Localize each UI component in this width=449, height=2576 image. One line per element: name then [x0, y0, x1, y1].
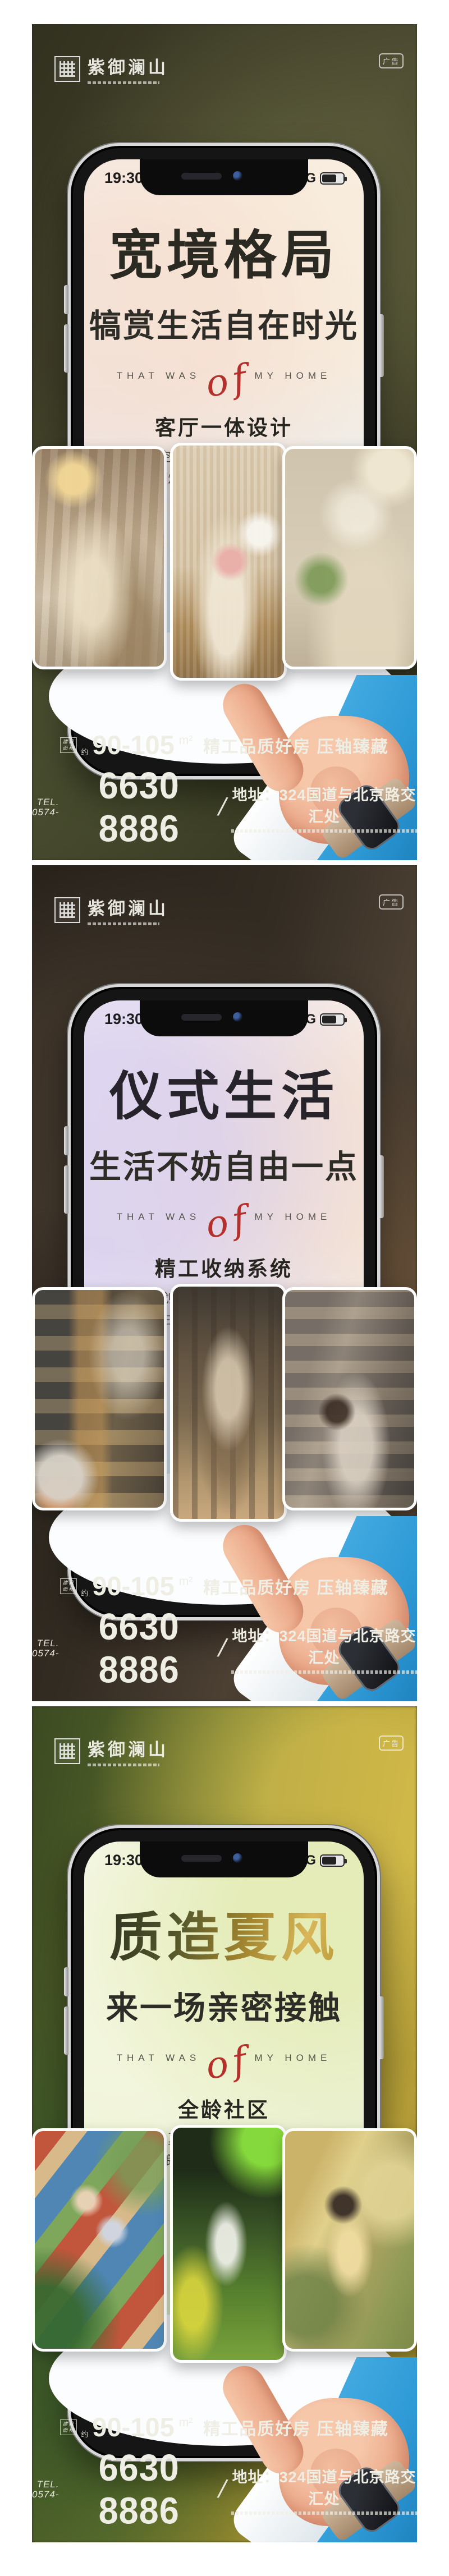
- tel-label: TEL. 0574-: [32, 797, 59, 818]
- area-unit: m²: [179, 1571, 193, 1588]
- brand-logo: 紫御澜山: [54, 894, 168, 925]
- subheadline: 来一场亲密接触: [84, 1982, 364, 2028]
- area-value: 90-105: [92, 1571, 174, 1601]
- area-slogan-line: 建筑 面积 约 90-105 m² 精工品质好房 压轴臻藏: [32, 1571, 417, 1601]
- phone-number: 6630 8886: [65, 1606, 213, 1692]
- power-button: [379, 1155, 384, 1218]
- tel-address-line: TEL. 0574- 6630 8886 / 地址：324国道与北京路交汇处: [32, 767, 417, 848]
- area-unit: m²: [179, 2412, 193, 2430]
- slogan: 精工品质好房 压轴臻藏: [203, 733, 388, 757]
- battery-icon: [320, 172, 345, 185]
- speaker-slot-icon: [181, 1855, 222, 1862]
- ad-badge: 广告: [379, 894, 404, 910]
- volume-up-button: [64, 285, 68, 314]
- approx-label: 约: [81, 746, 88, 760]
- camera-icon: [233, 1012, 242, 1022]
- photo-left: [32, 1287, 167, 1510]
- tagline-left: THAT WAS: [117, 2052, 201, 2064]
- english-tagline: THAT WAS of MY HOME: [84, 361, 364, 391]
- photo-center: [170, 443, 287, 681]
- tagline-script-of: of: [203, 2040, 252, 2077]
- slogan: 精工品质好房 压轴臻藏: [203, 1574, 388, 1599]
- tagline-right: MY HOME: [254, 370, 331, 382]
- tagline-right: MY HOME: [254, 1211, 331, 1223]
- volume-down-button: [64, 324, 68, 373]
- divider-slash: /: [216, 793, 230, 821]
- volume-down-button: [64, 2006, 68, 2055]
- english-tagline: THAT WAS of MY HOME: [84, 2043, 364, 2073]
- camera-icon: [233, 1853, 242, 1863]
- disclaimer-line: [231, 1670, 417, 1674]
- panel-header: 紫御澜山 广告: [54, 53, 404, 84]
- section-title: 客厅一体设计: [84, 411, 364, 441]
- phone-notch: [140, 1000, 308, 1036]
- english-tagline: THAT WAS of MY HOME: [84, 1202, 364, 1232]
- brand-seal-icon: [54, 1738, 80, 1764]
- subheadline: 犒赏生活自在时光: [84, 300, 364, 346]
- status-time: 19:30: [104, 169, 143, 187]
- volume-down-button: [64, 1165, 68, 1214]
- area-label: 建筑 面积: [60, 737, 77, 753]
- address: 地址：324国道与北京路交汇处: [231, 1624, 417, 1668]
- speaker-slot-icon: [181, 173, 222, 180]
- brand-subline: [88, 922, 159, 925]
- tagline-right: MY HOME: [254, 2052, 331, 2064]
- disclaimer-line: [231, 829, 417, 833]
- tel-label: TEL. 0574-: [32, 1638, 59, 1659]
- area-slogan-line: 建筑 面积 约 90-105 m² 精工品质好房 压轴臻藏: [32, 2412, 417, 2442]
- headline: 仪式生活: [84, 1067, 364, 1126]
- photo-center: [170, 2125, 287, 2363]
- photo-left: [32, 446, 167, 669]
- area-label: 建筑 面积: [60, 2419, 77, 2435]
- phone-number: 6630 8886: [65, 765, 213, 851]
- speaker-slot-icon: [181, 1014, 222, 1021]
- area-value: 90-105: [92, 729, 174, 760]
- poster-page: 紫御澜山 广告 19:30 5G: [0, 24, 449, 2576]
- tel-address-line: TEL. 0574- 6630 8886 / 地址：324国道与北京路交汇处: [32, 2449, 417, 2530]
- photo-right: [282, 1287, 417, 1510]
- volume-up-button: [64, 1126, 68, 1155]
- tagline-script-of: of: [203, 1199, 252, 1236]
- brand-logo: 紫御澜山: [54, 1735, 168, 1766]
- ad-badge: 广告: [379, 53, 404, 68]
- poster-panel: 紫御澜山 广告 19:30 5G: [32, 1706, 417, 2542]
- poster-panel: 紫御澜山 广告 19:30 5G: [32, 865, 417, 1701]
- photo-center: [170, 1284, 287, 1522]
- status-time: 19:30: [104, 1852, 143, 1869]
- phone-notch: [140, 1842, 308, 1877]
- phone-number: 6630 8886: [65, 2447, 213, 2533]
- status-time: 19:30: [104, 1011, 143, 1028]
- tel-label: TEL. 0574-: [32, 2479, 59, 2500]
- section-title: 精工收纳系统: [84, 1252, 364, 1282]
- brand-seal-icon: [54, 897, 80, 923]
- address: 地址：324国道与北京路交汇处: [231, 2465, 417, 2509]
- ad-badge: 广告: [379, 1735, 404, 1751]
- battery-icon: [320, 1854, 345, 1867]
- brand-subline: [88, 81, 159, 84]
- seal-glyph-icon: [59, 1743, 75, 1759]
- panel-header: 紫御澜山 广告: [54, 1735, 404, 1766]
- section-title: 全龄社区: [84, 2093, 364, 2123]
- subheadline: 生活不妨自由一点: [84, 1141, 364, 1187]
- volume-up-button: [64, 1967, 68, 1996]
- area-slogan-line: 建筑 面积 约 90-105 m² 精工品质好房 压轴臻藏: [32, 729, 417, 760]
- brand-name: 紫御澜山: [88, 1735, 168, 1761]
- panel-header: 紫御澜山 广告: [54, 894, 404, 925]
- brand-name: 紫御澜山: [88, 53, 168, 79]
- photo-left: [32, 2128, 167, 2352]
- power-button: [379, 1996, 384, 2059]
- disclaimer-line: [231, 2511, 417, 2515]
- tel-address-line: TEL. 0574- 6630 8886 / 地址：324国道与北京路交汇处: [32, 1608, 417, 1689]
- area-value: 90-105: [92, 2412, 174, 2442]
- photo-right: [282, 446, 417, 669]
- area-unit: m²: [179, 729, 193, 747]
- approx-label: 约: [81, 1587, 88, 1601]
- power-button: [379, 314, 384, 377]
- headline: 宽境格局: [84, 226, 364, 284]
- brand-logo: 紫御澜山: [54, 53, 168, 84]
- tagline-script-of: of: [203, 357, 252, 395]
- poster-panel: 紫御澜山 广告 19:30 5G: [32, 24, 417, 860]
- seal-glyph-icon: [59, 61, 75, 77]
- panels-root: 紫御澜山 广告 19:30 5G: [0, 24, 449, 2542]
- approx-label: 约: [81, 2428, 88, 2442]
- slogan: 精工品质好房 压轴臻藏: [203, 2415, 388, 2440]
- brand-name: 紫御澜山: [88, 894, 168, 920]
- tagline-left: THAT WAS: [117, 1211, 201, 1223]
- headline: 质造夏风: [84, 1908, 364, 1967]
- tagline-left: THAT WAS: [117, 370, 201, 382]
- divider-slash: /: [216, 1634, 230, 1663]
- photo-right: [282, 2128, 417, 2352]
- divider-slash: /: [216, 2476, 230, 2504]
- contact-footer: 建筑 面积 约 90-105 m² 精工品质好房 压轴臻藏 TEL. 0574-…: [32, 1571, 417, 1689]
- contact-footer: 建筑 面积 约 90-105 m² 精工品质好房 压轴臻藏 TEL. 0574-…: [32, 2412, 417, 2530]
- brand-subline: [88, 1764, 159, 1766]
- contact-footer: 建筑 面积 约 90-105 m² 精工品质好房 压轴臻藏 TEL. 0574-…: [32, 729, 417, 848]
- address: 地址：324国道与北京路交汇处: [231, 783, 417, 826]
- area-label: 建筑 面积: [60, 1578, 77, 1594]
- phone-notch: [140, 159, 308, 195]
- brand-seal-icon: [54, 56, 80, 82]
- battery-icon: [320, 1013, 345, 1026]
- seal-glyph-icon: [59, 902, 75, 918]
- camera-icon: [233, 171, 242, 181]
